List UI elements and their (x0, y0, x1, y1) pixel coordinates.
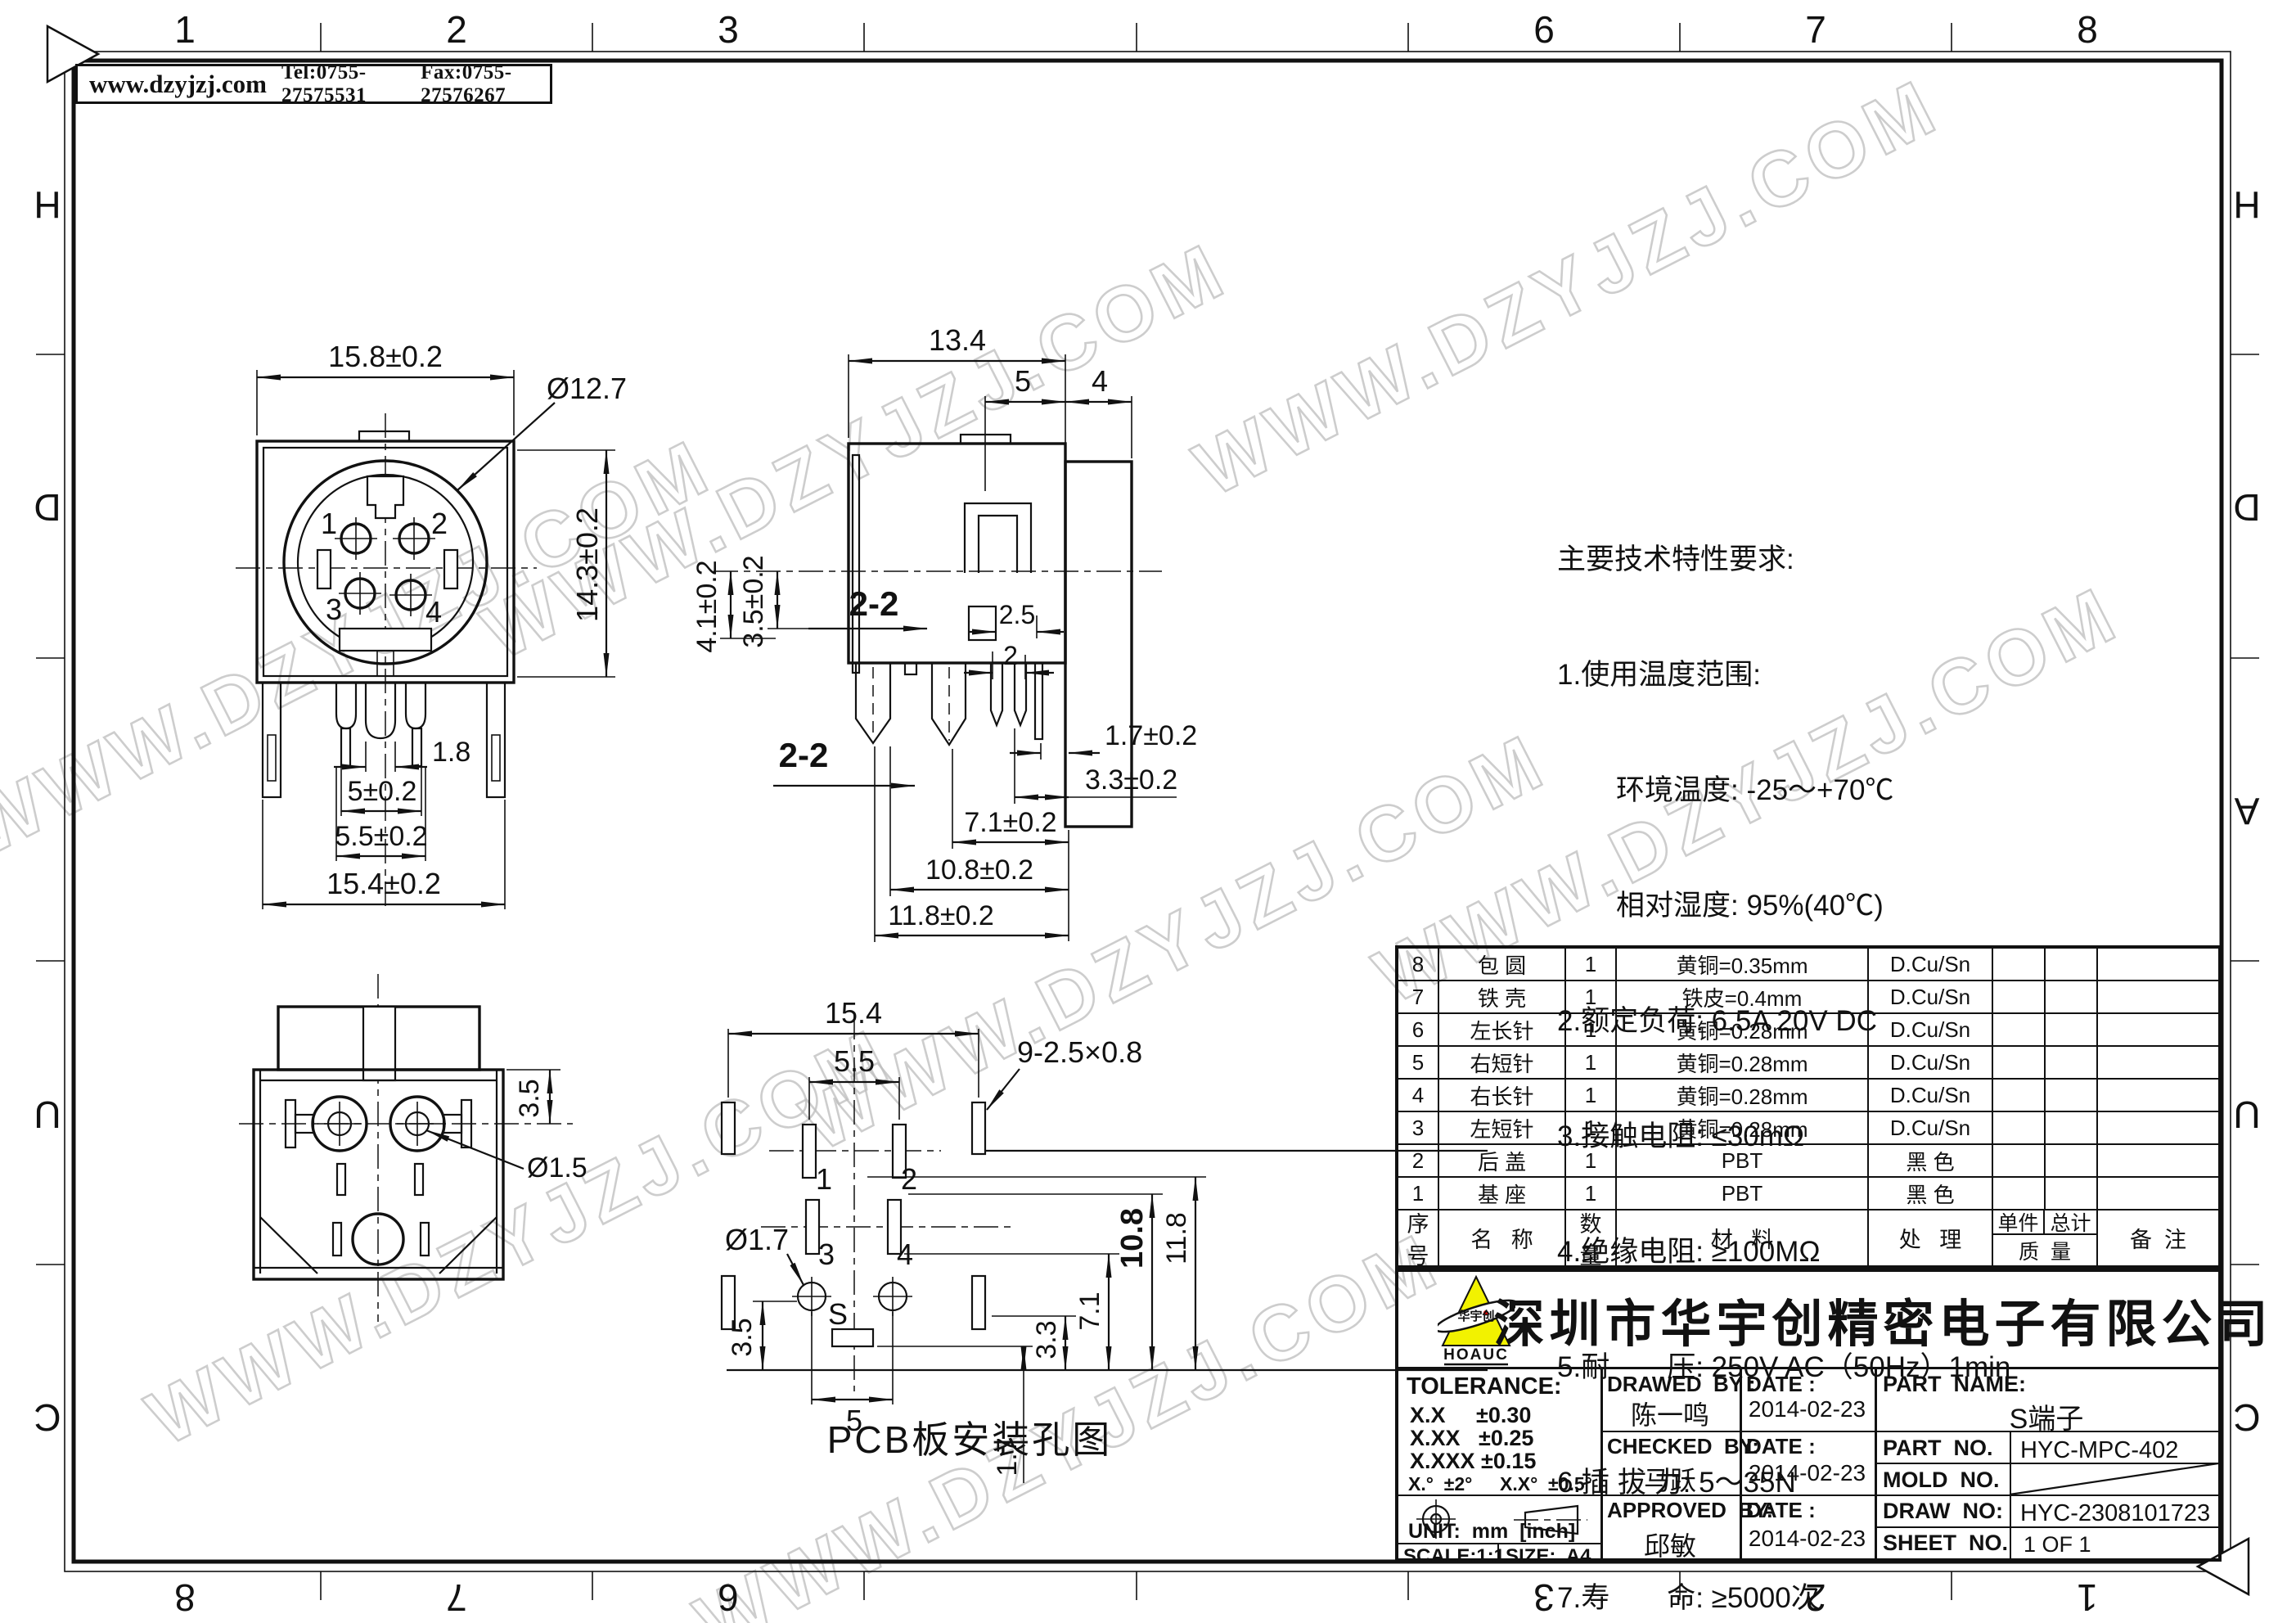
sheet-no-label: SHEET NO. (1883, 1531, 2008, 1556)
size-label: SIZE: A4 (1506, 1545, 1591, 1568)
date-value: 2014-02-23 (1740, 1396, 1875, 1422)
dim-side-top-a: 5 (1015, 364, 1031, 398)
bom-cell: 黑 色 (1869, 1178, 1993, 1210)
date-label: DATE : (1746, 1372, 1816, 1397)
dim-front-width: 15.8±0.2 (328, 340, 443, 373)
bom-cell: 7 (1398, 981, 1439, 1014)
logo-cn-text: 华宇创 (1457, 1309, 1494, 1323)
dim-side-left-b: 3.5±0.2 (738, 555, 769, 647)
dim-pcb-left: 3.5 (727, 1318, 758, 1356)
bom-cell (2098, 981, 2218, 1014)
zone-number: 3 (718, 8, 739, 51)
tolerance-title: TOLERANCE: (1407, 1373, 1562, 1400)
zone-number: 8 (174, 1576, 196, 1619)
bom-cell (2098, 1145, 2218, 1178)
dim-side-top-b: 4 (1092, 364, 1108, 398)
section-label: 2-2 (779, 736, 829, 774)
bom-cell: 1 (1566, 981, 1617, 1014)
bom-header-no: 序 号 (1398, 1210, 1439, 1265)
bom-cell (1993, 1112, 2046, 1145)
bottom-slot (340, 629, 431, 651)
bom-cell: 黄铜=0.28mm (1617, 1112, 1869, 1145)
dim-pcb-slots: 9-2.5×0.8 (1017, 1035, 1142, 1069)
bom-cell: 2 (1398, 1145, 1439, 1178)
part-no-value: HYC-MPC-402 (2020, 1437, 2178, 1464)
bom-cell (1993, 1145, 2046, 1178)
pad-number: 3 (818, 1238, 835, 1271)
dim-side-width: 13.4 (929, 323, 986, 357)
zone-number: 2 (446, 8, 467, 51)
bom-cell: 1 (1566, 1178, 1617, 1210)
bom-cell: 1 (1566, 1112, 1617, 1145)
bom-header-mass: 质 量 (1993, 1235, 2096, 1265)
keyway (367, 476, 403, 518)
part-name-value: S端子 (1875, 1396, 2218, 1436)
part-no-label: PART NO. (1883, 1436, 1993, 1461)
zone-letter: U (2233, 1093, 2260, 1136)
bom-cell: D.Cu/Sn (1869, 1014, 1993, 1047)
bom-cell: 1 (1566, 949, 1617, 981)
bom-cell (2046, 981, 2098, 1014)
zone-letter: C (2233, 1396, 2260, 1439)
bom-cell: 右长针 (1439, 1080, 1566, 1112)
bom-cell: 1 (1398, 1178, 1439, 1210)
zone-letter: H (2233, 183, 2260, 226)
bom-header-remark: 备 注 (2098, 1210, 2218, 1265)
checked-by-value: 马跃 (1600, 1460, 1740, 1498)
bom-cell: 左短针 (1439, 1112, 1566, 1145)
bom-cell: PBT (1617, 1178, 1869, 1210)
pad-number: S (828, 1297, 848, 1331)
dim-bottom-hole: Ø1.5 (527, 1152, 588, 1183)
date-label: DATE : (1746, 1498, 1816, 1523)
front-top-tab (359, 431, 409, 441)
banner-tel: Tel:0755-27575531 (281, 61, 406, 107)
bom-cell (2098, 1112, 2218, 1145)
tech-line: 7.寿 命: ≥5000次 (1557, 1579, 2010, 1617)
date-label: DATE : (1746, 1434, 1816, 1459)
bom-cell (2098, 1014, 2218, 1047)
side-notch-left (317, 550, 331, 588)
bom-cell: 6 (1398, 1014, 1439, 1047)
pcb-caption: PCB板安装孔图 (827, 1418, 1113, 1461)
title-block: 华宇创 HOAUC 深圳市华宇创精密电子有限公司 TOLERANCE: X.X … (1395, 1269, 2222, 1562)
bom-cell: 右短针 (1439, 1047, 1566, 1080)
bom-cell (1993, 1080, 2046, 1112)
bom-cell: 铁 壳 (1439, 981, 1566, 1014)
part-name-label: PART NAME: (1883, 1372, 2026, 1397)
checked-by-label: CHECKED BY: (1607, 1434, 1759, 1459)
bom-cell (2098, 949, 2218, 981)
zone-number: 7 (1805, 8, 1826, 51)
dim-pcb-r4: 11.8 (1161, 1212, 1192, 1265)
bom-cell: D.Cu/Sn (1869, 949, 1993, 981)
bom-header-qty: 数 量 (1566, 1210, 1617, 1265)
draw-no-value: HYC-2308101723 (2020, 1500, 2210, 1527)
banner-site: www.dzyjzj.com (89, 70, 267, 99)
bom-cell: 3 (1398, 1112, 1439, 1145)
dim-pcb-r2: 7.1 (1074, 1292, 1105, 1330)
company-name: 深圳市华宇创精密电子有限公司 (1554, 1272, 2213, 1367)
tech-line: 相对湿度: 95%(40℃) (1557, 886, 2010, 925)
bom-cell: D.Cu/Sn (1869, 1080, 1993, 1112)
section-label: 2-2 (849, 584, 899, 623)
bom-cell: 5 (1398, 1047, 1439, 1080)
zone-letter: D (34, 486, 61, 529)
dim-front-span-mid: 5.5±0.2 (335, 821, 427, 852)
zone-number: 7 (446, 1576, 467, 1619)
dim-front-height: 14.3±0.2 (570, 507, 604, 622)
frame-ticks-top (321, 23, 1952, 52)
dim-bottom-offset: 3.5 (514, 1079, 545, 1117)
dim-side-b1: 1.7±0.2 (1105, 720, 1197, 751)
zone-letter: H (34, 183, 61, 226)
tolerance-4b: X.X° ±0.5° (1500, 1473, 1592, 1495)
bom-cell (2046, 1080, 2098, 1112)
tolerance-4a: X.° ±2° (1408, 1473, 1472, 1495)
dim-side-b5: 11.8±0.2 (888, 900, 994, 931)
tolerance-3: X.XXX ±0.15 (1410, 1449, 1536, 1474)
bom-cell (1993, 981, 2046, 1014)
dim-side-left-a: 4.1±0.2 (691, 560, 723, 652)
bom-cell: 1 (1566, 1145, 1617, 1178)
bom-cell (2098, 1047, 2218, 1080)
pad-number: 2 (901, 1162, 917, 1196)
zone-letter: A (2234, 790, 2259, 832)
bom-header-process: 处 理 (1869, 1210, 1993, 1265)
bom-cell: 1 (1566, 1047, 1617, 1080)
bom-cell: 包 圆 (1439, 949, 1566, 981)
dim-side-b2: 3.3±0.2 (1085, 764, 1177, 796)
mold-no-label: MOLD NO. (1883, 1467, 2000, 1493)
dim-front-span-inner: 5±0.2 (348, 776, 417, 807)
tech-line: 环境温度: -25～+70℃ (1557, 771, 2010, 809)
tech-line: 主要技术特性要求: (1557, 540, 2010, 579)
bom-cell (2046, 949, 2098, 981)
watermark-text: WWW.DZYJZJ.COM (1182, 62, 1953, 512)
inner-step (969, 606, 996, 640)
dim-pcb-r1: 3.3 (1031, 1320, 1062, 1359)
date-value: 2014-02-23 (1740, 1460, 1875, 1486)
sheet-no-value: 1 OF 1 (2024, 1532, 2091, 1558)
bom-header-mass-group: 单件 总计 质 量 (1993, 1210, 2098, 1265)
drawed-by-label: DRAWED BY : (1607, 1372, 1756, 1397)
bom-cell: 黄铜=0.35mm (1617, 949, 1869, 981)
section-marks: 2-2 2-2 (773, 584, 927, 786)
dim-front-pin: 1.8 (432, 737, 470, 768)
bom-cell (2046, 1178, 2098, 1210)
bom-header-total: 总计 (2045, 1210, 2096, 1235)
bom-cell: 黄铜=0.28mm (1617, 1014, 1869, 1047)
bom-cell (1993, 1014, 2046, 1047)
bom-cell: 黄铜=0.28mm (1617, 1080, 1869, 1112)
bom-cell (1993, 949, 2046, 981)
bom-cell: 8 (1398, 949, 1439, 981)
latch-window (965, 503, 1031, 573)
dim-pcb-width: 15.4 (825, 996, 882, 1030)
bom-cell: PBT (1617, 1145, 1869, 1178)
zone-number: 6 (1533, 8, 1555, 51)
bom-cell (2098, 1080, 2218, 1112)
scale-label: SCALE:1:1 (1403, 1545, 1505, 1568)
bom-cell: 4 (1398, 1080, 1439, 1112)
zone-letter: D (2233, 486, 2260, 529)
unit-label: UNIT: mm [inch] (1408, 1520, 1575, 1544)
bom-cell (2046, 1014, 2098, 1047)
approved-by-value: 邱敏 (1600, 1526, 1740, 1563)
drawed-by-value: 陈一鸣 (1600, 1395, 1740, 1432)
bottom-view-dimensions: 3.5 Ø1.5 (426, 1070, 588, 1183)
bom-cell (2046, 1047, 2098, 1080)
bom-cell (1993, 1047, 2046, 1080)
dim-front-span-outer: 15.4±0.2 (326, 867, 441, 900)
pin-number: 3 (326, 593, 342, 626)
tolerance-1: X.X ±0.30 (1410, 1403, 1531, 1428)
bom-cell: D.Cu/Sn (1869, 981, 1993, 1014)
bom-table: 8包 圆1黄铜=0.35mmD.Cu/Sn 7铁 壳1铁皮=0.4mmD.Cu/… (1395, 945, 2222, 1269)
bom-cell: 后 盖 (1439, 1145, 1566, 1178)
dim-pcb-hole: Ø1.7 (725, 1223, 789, 1256)
bom-header-unit: 单件 (1993, 1210, 2045, 1235)
drawing-sheet: .o3{stroke:#111;stroke-width:3.4;fill:no… (0, 0, 2296, 1623)
dim-pcb-mid: 5.5 (834, 1044, 875, 1078)
dim-front-diameter: Ø12.7 (547, 372, 627, 405)
date-value: 2014-02-23 (1740, 1526, 1875, 1552)
bom-cell: D.Cu/Sn (1869, 1112, 1993, 1145)
bom-header-name: 名 称 (1439, 1210, 1566, 1265)
pin-number: 4 (425, 595, 442, 629)
pin-number: 1 (321, 507, 337, 540)
bom-cell: 1 (1566, 1080, 1617, 1112)
side-notch-right (444, 550, 457, 588)
bom-cell: 左长针 (1439, 1014, 1566, 1047)
bom-cell: 黄铜=0.28mm (1617, 1047, 1869, 1080)
dim-pcb-r3: 10.8 (1115, 1208, 1150, 1269)
bom-cell (2046, 1112, 2098, 1145)
bom-cell: 基 座 (1439, 1178, 1566, 1210)
dim-side-b3: 7.1±0.2 (964, 807, 1056, 838)
bom-cell (1993, 1178, 2046, 1210)
zone-number: 1 (2077, 1576, 2098, 1619)
bom-cell: 1 (1566, 1014, 1617, 1047)
draw-no-label: DRAW NO: (1883, 1499, 2003, 1524)
bom-cell: 铁皮=0.4mm (1617, 981, 1869, 1014)
banner-fax: Fax:0755-27576267 (421, 61, 550, 107)
dim-side-step-a: 2.5 (999, 600, 1035, 629)
zone-number: 6 (718, 1576, 739, 1619)
bom-cell: 黑 色 (1869, 1145, 1993, 1178)
zone-number: 3 (1533, 1576, 1555, 1619)
pin-number: 2 (431, 507, 448, 540)
dim-side-b4: 10.8±0.2 (925, 854, 1033, 886)
bom-header-material: 材 料 (1617, 1210, 1869, 1265)
zone-letter: C (34, 1396, 61, 1439)
tolerance-2: X.XX ±0.25 (1410, 1426, 1533, 1451)
zone-number: 1 (174, 8, 196, 51)
zone-letter: U (34, 1093, 61, 1136)
zone-number: 8 (2077, 8, 2098, 51)
bom-cell: D.Cu/Sn (1869, 1047, 1993, 1080)
company-banner: www.dzyjzj.com Tel:0755-27575531 Fax:075… (75, 64, 552, 104)
pad-number: 1 (816, 1162, 832, 1196)
dim-side-step-b: 2 (1003, 641, 1018, 670)
bom-cell (2046, 1145, 2098, 1178)
bom-cell (2098, 1178, 2218, 1210)
tech-line: 1.使用温度范围: (1557, 656, 2010, 694)
